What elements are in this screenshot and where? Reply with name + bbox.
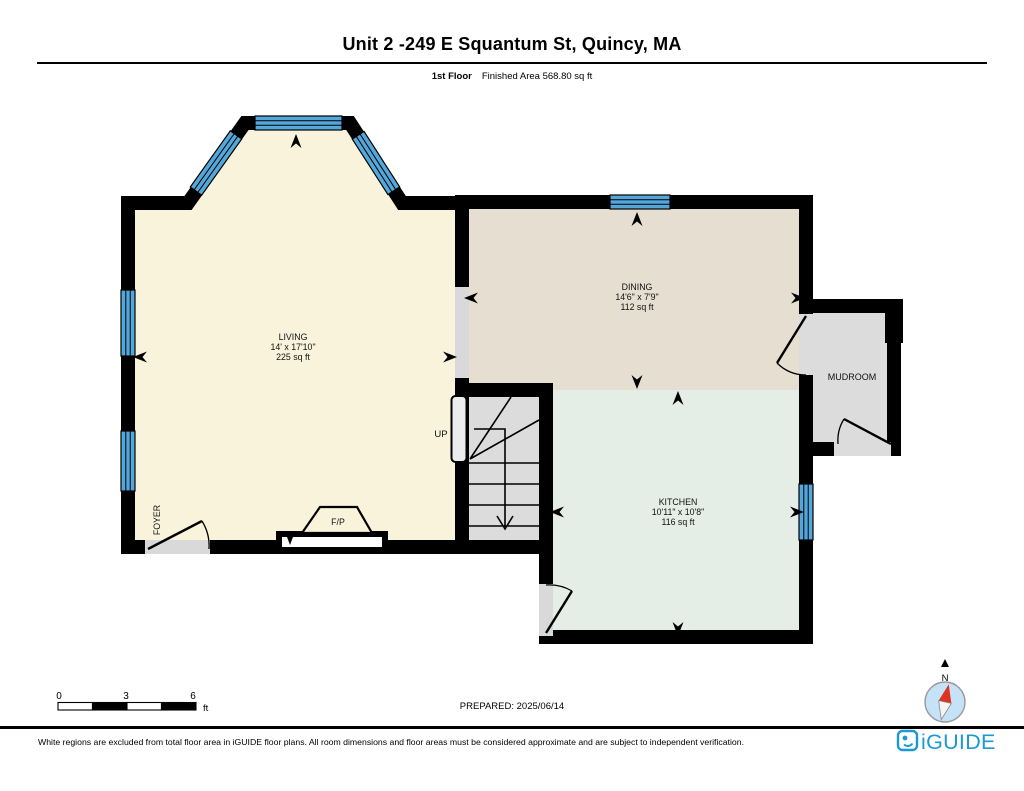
stairs-door-slab xyxy=(452,396,467,462)
scale-tick-6: 6 xyxy=(190,691,196,702)
scale-unit-label: ft xyxy=(203,703,209,714)
stairs-up-label: UP xyxy=(434,429,447,440)
dining-top-window xyxy=(610,195,670,209)
scale-segment xyxy=(127,703,162,711)
stairs-floor xyxy=(462,390,546,547)
kitchen-dimensions: 10'11" x 10'8" xyxy=(652,507,705,517)
prepared-date: PREPARED: 2025/06/14 xyxy=(460,701,564,712)
fireplace-label: F/P xyxy=(331,517,345,527)
compass-north-arrow-icon xyxy=(941,659,949,667)
scale-tick-3: 3 xyxy=(123,691,129,702)
bay-window-top xyxy=(255,116,342,130)
iguide-logo-icon xyxy=(898,731,917,750)
dining-dimensions: 14'6" x 7'9" xyxy=(615,292,658,302)
mudroom-wall-notch xyxy=(885,299,903,343)
living-dimensions: 14' x 17'10" xyxy=(270,342,315,352)
iguide-logo: iGUIDE xyxy=(898,730,996,754)
living-dining-passage xyxy=(455,287,469,378)
iguide-logo-icon-dot xyxy=(903,736,908,741)
scale-segment xyxy=(162,703,197,711)
living-left-window-2 xyxy=(121,431,135,491)
kitchen-door-gap xyxy=(539,584,553,636)
compass: N xyxy=(925,659,965,722)
foyer-label: FOYER xyxy=(152,505,162,535)
scale-segment xyxy=(58,703,93,711)
foyer-door-threshold xyxy=(145,540,210,554)
footer-divider xyxy=(0,726,1024,729)
scale-tick-0: 0 xyxy=(56,691,62,702)
dining-area: 112 sq ft xyxy=(620,302,654,312)
footer-disclaimer: White regions are excluded from total fl… xyxy=(38,737,798,747)
living-label: LIVING xyxy=(279,332,308,342)
scale-segment xyxy=(93,703,128,711)
kitchen-label: KITCHEN xyxy=(659,497,698,507)
dining-label: DINING xyxy=(622,282,653,292)
mudroom-label: MUDROOM xyxy=(828,372,877,382)
living-area: 225 sq ft xyxy=(276,352,310,362)
iguide-brand-text: iGUIDE xyxy=(921,730,996,754)
kitchen-area: 116 sq ft xyxy=(661,517,695,527)
living-left-window-1 xyxy=(121,290,135,356)
iguide-logo-icon-curve xyxy=(904,744,913,747)
mudroom-exterior-threshold xyxy=(834,442,891,456)
floor-plan-svg: F/P LIVING 14' x 17'10" 225 sq ft DINING… xyxy=(0,0,1024,791)
fireplace-hearth-inner xyxy=(282,537,382,547)
scale-bar: 0 3 6 ft xyxy=(56,691,208,714)
